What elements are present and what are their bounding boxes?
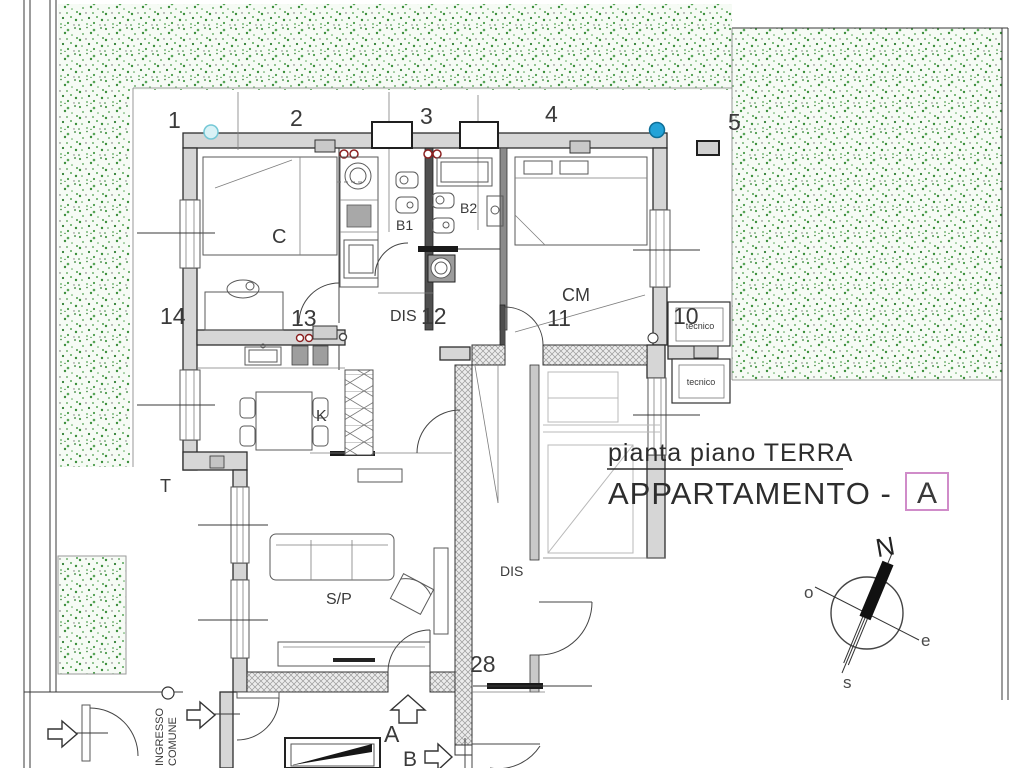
grid-number-1: 1 — [168, 107, 181, 133]
grid-number-14: 14 — [160, 303, 186, 329]
windows — [137, 92, 700, 658]
entrance-markers: A B INGRESSO COMUNE — [48, 695, 452, 768]
entrance-arrow-a-icon — [391, 695, 425, 723]
chimney-box — [372, 122, 412, 148]
common-entrance-label-line1: INGRESSO — [154, 707, 166, 766]
garden-top-band — [58, 4, 732, 90]
flue-symbol — [340, 334, 347, 341]
armchair — [390, 574, 433, 615]
oven — [313, 346, 328, 365]
stairs — [345, 370, 373, 455]
washer-icon — [431, 258, 451, 278]
room-label-b1: B1 — [396, 217, 413, 233]
grid-number-28: 28 — [470, 651, 496, 677]
room-label-k: K — [316, 408, 327, 425]
wc-icon — [432, 193, 454, 208]
room-label-sp: S/P — [326, 591, 352, 608]
window — [650, 210, 670, 287]
grid-number-10: 10 — [673, 303, 699, 329]
wc-icon — [396, 172, 418, 188]
wall-symbol — [648, 333, 658, 343]
garden-left-band — [58, 90, 130, 467]
room-label-t: T — [160, 476, 171, 496]
room-label-b2: B2 — [460, 200, 477, 216]
grid-number-12: 12 — [421, 303, 447, 329]
common-entry-arrow-icon — [48, 721, 77, 747]
grid-number-11: 11 — [547, 305, 571, 331]
flue-symbol — [297, 335, 304, 342]
entrance-label-b: B — [403, 748, 417, 768]
flue-symbol — [424, 150, 432, 158]
floor-plan-page: tecnico tecnico 1 2 3 4 5 14 13 12 11 10… — [0, 0, 1024, 768]
entrance-label-a: A — [384, 721, 400, 747]
site-symbol — [162, 687, 174, 699]
compass-needle — [860, 561, 894, 621]
plan-subtitle: pianta piano TERRA — [608, 439, 853, 467]
grid-number-13: 13 — [291, 305, 317, 331]
tecnico-label-2: tecnico — [687, 377, 716, 387]
living-room-furniture — [270, 469, 448, 666]
chair — [313, 426, 328, 446]
plan-title: APPARTAMENTO - — [608, 476, 892, 511]
wardrobe-column — [340, 157, 378, 287]
grid-number-4: 4 — [545, 101, 558, 127]
grid-number-3: 3 — [420, 103, 433, 129]
entry-steps — [285, 738, 380, 768]
compass-west-label: o — [804, 583, 813, 602]
room-label-c: C — [272, 226, 286, 248]
compass-east-label: e — [921, 631, 930, 650]
kitchen-fixtures — [197, 344, 345, 450]
desk — [205, 280, 283, 330]
chimney-box — [460, 122, 498, 148]
chair — [240, 426, 255, 446]
radiator — [358, 469, 402, 482]
washer-icon — [345, 163, 371, 189]
entrance-arrow-b-icon — [425, 744, 452, 768]
tv-cabinet — [278, 642, 430, 666]
bathroom-b2-fixtures — [428, 158, 503, 282]
garden-right-area — [732, 28, 1002, 380]
bed-double — [515, 157, 647, 245]
unit-badge-letter: A — [917, 477, 937, 510]
room-label-cm: CM — [562, 285, 590, 305]
room-label-dis-lower: DIS — [500, 563, 523, 579]
room-labels: C B1 B2 CM DIS DIS K S/P T — [160, 200, 590, 608]
grid-number-2: 2 — [290, 105, 303, 131]
compass-south-label: s — [843, 673, 852, 692]
floor-plan-drawing: tecnico tecnico 1 2 3 4 5 14 13 12 11 10… — [0, 0, 1024, 768]
compass-rose: N o e s — [804, 530, 930, 692]
dining-table — [256, 392, 312, 450]
grid-number-5: 5 — [728, 109, 741, 135]
window — [231, 580, 249, 658]
garden-bottom-left-patch — [58, 556, 126, 674]
shelf — [434, 548, 448, 634]
marker-cyan-circle — [204, 125, 218, 139]
common-entrance-label-line2: COMUNE — [167, 717, 179, 766]
room-label-dis-upper: DIS — [390, 308, 417, 325]
sofa — [270, 534, 394, 580]
marker-blue-circle — [650, 123, 665, 138]
vent — [570, 141, 590, 153]
vent-external — [697, 141, 719, 155]
stove — [292, 346, 308, 365]
common-entry-arrow-icon — [187, 702, 215, 728]
flue-symbol — [433, 150, 441, 158]
vent — [315, 140, 335, 152]
compass-north-label: N — [873, 530, 897, 563]
flue-symbol — [306, 335, 313, 342]
window — [180, 200, 200, 268]
hatched-common-walls — [247, 345, 647, 755]
chair — [240, 398, 255, 418]
